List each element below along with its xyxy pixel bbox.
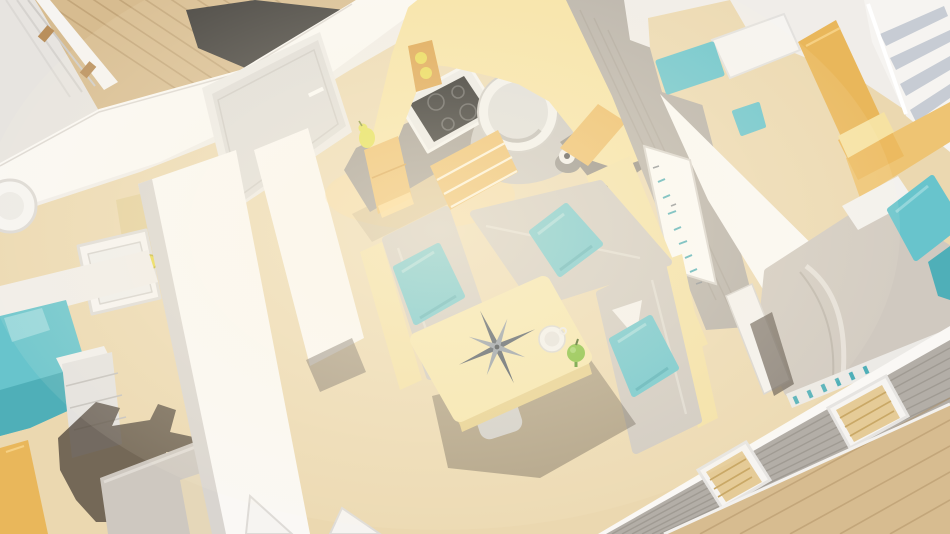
mobile-home-cutaway-render bbox=[0, 0, 950, 534]
render-viewport bbox=[0, 0, 950, 534]
